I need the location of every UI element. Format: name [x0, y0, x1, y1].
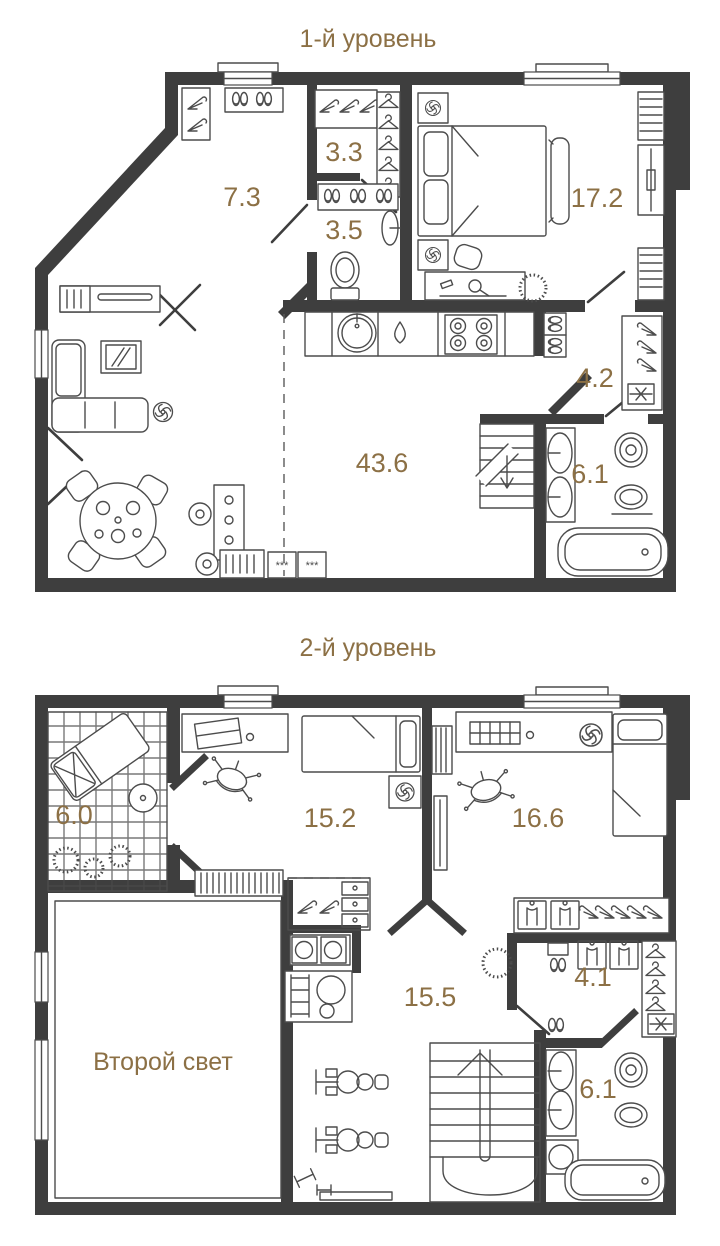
nightstand-icon-2 — [418, 240, 448, 270]
bar-cabinets: *** *** — [268, 552, 326, 578]
tv-console — [60, 286, 160, 312]
room-label-hallway: 7.3 — [223, 182, 261, 212]
level-2-title: 2-й уровень — [300, 634, 437, 662]
dressing-table — [425, 272, 525, 300]
room-label-bedroom3: 16.6 — [512, 803, 565, 833]
utility-closet — [285, 935, 352, 1022]
bathroom1-bidet — [612, 485, 652, 514]
wine-rack — [220, 550, 264, 578]
room-label-bedroom2: 15.2 — [304, 803, 357, 833]
entry-hanger-box — [182, 88, 210, 140]
floor-plan-drawing: 1-й уровень — [0, 0, 720, 1246]
room-label-wc: 3.5 — [325, 215, 363, 245]
plant-icon-2 — [483, 949, 511, 977]
pouf-icon — [452, 243, 484, 272]
svg-text:***: *** — [306, 560, 320, 572]
shoe-shelf — [318, 184, 398, 210]
room-label-closet42: 4.2 — [576, 363, 614, 393]
bedroom3-furniture — [432, 712, 667, 870]
closet41-contents — [548, 941, 676, 1037]
room-label-hall: 15.5 — [404, 982, 457, 1012]
bathroom1-bathtub — [558, 528, 668, 576]
kitchen-shoe-rack — [544, 313, 566, 357]
room-label-terrace: 6.0 — [55, 800, 93, 830]
room-label-bathroom2: 6.1 — [579, 1074, 617, 1104]
bathroom1-toilet — [615, 433, 647, 467]
stairs-level1 — [476, 424, 534, 508]
room-label-bedroom: 17.2 — [571, 183, 624, 213]
wc-mirror-icon — [382, 211, 400, 245]
dining-table — [64, 468, 170, 574]
terrace-table-icon — [129, 784, 157, 812]
room-label-living: 43.6 — [356, 448, 409, 478]
closet42-contents — [622, 316, 662, 410]
fan-icon — [154, 403, 173, 422]
kitchen-counter — [305, 312, 534, 356]
void-label: Второй свет — [93, 1048, 233, 1076]
tv-icon — [101, 341, 141, 373]
nightstand-icon — [418, 93, 448, 123]
room-label-wardrobe: 3.3 — [325, 137, 363, 167]
room-label-bathroom1: 6.1 — [571, 459, 609, 489]
bed-icon — [418, 126, 546, 236]
svg-text:***: *** — [276, 560, 290, 572]
level-2-walls — [35, 695, 690, 1215]
level-1-title: 1-й уровень — [300, 25, 437, 53]
bench-icon — [549, 138, 569, 224]
bedroom3-wardrobe-row — [514, 898, 669, 933]
room-label-closet41: 4.1 — [574, 962, 612, 992]
gym-equipment — [294, 1069, 392, 1200]
entry-shoe-box — [225, 88, 283, 112]
floor-plan-canvas: 1-й уровень — [0, 0, 720, 1246]
bedroom-wardrobe-strips — [638, 92, 664, 300]
stairs-level2 — [430, 1043, 540, 1202]
bedroom2-furniture — [182, 714, 421, 808]
wc-toilet-icon — [331, 252, 359, 300]
